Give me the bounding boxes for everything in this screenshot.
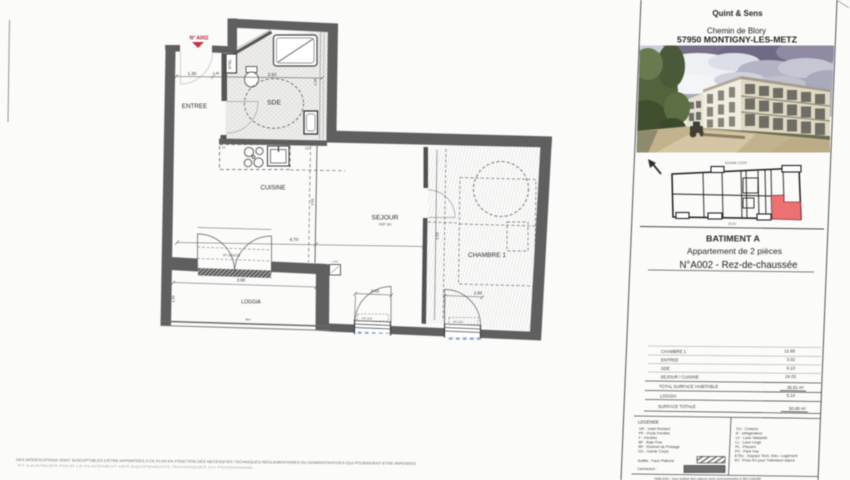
svg-text:BF : Baie Fixe: BF : Baie Fixe [638,441,662,445]
svg-text:Soffite : Faux Plafond: Soffite : Faux Plafond [638,459,674,463]
svg-text:3.61: 3.61 [311,199,315,206]
svg-text:PF 215: PF 215 [453,320,463,324]
svg-text:CU : Cuisson: CU : Cuisson [736,427,758,431]
svg-text:N°A002 - Rez-de-chaussée: N°A002 - Rez-de-chaussée [680,260,798,271]
svg-text:35.50: 35.50 [728,222,736,226]
svg-text:6.70: 6.70 [290,237,299,242]
svg-text:ETEL : Espace Tech. Elec. Loge: ETEL : Espace Tech. Elec. Logement [735,454,799,458]
svg-text:VR : Volet Roulant: VR : Volet Roulant [639,427,671,431]
svg-text:Quint & Sens: Quint & Sens [712,9,763,18]
svg-text:SEJOUR: SEJOUR [372,215,400,222]
svg-text:2.40: 2.40 [371,289,380,294]
svg-text:ETEL: ETEL [227,58,232,69]
svg-text:F : Fenêtre: F : Fenêtre [639,436,658,440]
svg-text:N° A002: N° A002 [190,36,209,42]
svg-text:1.30: 1.30 [188,71,197,76]
svg-text:ENTREE: ENTREE [182,103,208,110]
svg-text:LL : Lave Linge: LL : Lave Linge [735,441,761,445]
svg-text:12.68: 12.68 [784,349,795,354]
svg-text:BATIMENT A: BATIMENT A [706,235,760,244]
svg-text:ET AJUSTEURS POUR LE PLACEMENT: ET AJUSTEURS POUR LE PLACEMENT DES EQUIP… [18,464,253,470]
svg-text:Appartement de 2 pièces: Appartement de 2 pièces [687,246,782,256]
svg-text:50.95 m²: 50.95 m² [789,406,807,411]
svg-text:SURFACE TOTALE: SURFACE TOTALE [658,404,696,409]
svg-text:LL: LL [222,146,226,150]
svg-text:ENTREE: ENTREE [661,358,679,363]
svg-text:2.35: 2.35 [314,79,318,86]
svg-text:SDE: SDE [661,366,670,371]
svg-text:860: 860 [245,318,250,322]
svg-text:24.03: 24.03 [785,374,796,379]
svg-text:2.93: 2.93 [268,72,277,77]
svg-text:3.02: 3.02 [787,357,796,362]
svg-text:2.60: 2.60 [474,291,483,296]
svg-text:LEGENDE: LEGENDE [638,420,659,425]
svg-text:GC : Garde Corps: GC : Garde Corps [638,450,669,454]
svg-text:45.81 m²: 45.81 m² [787,385,805,390]
svg-text:1.55: 1.55 [172,296,176,303]
svg-text:PF : Porte Fenêtre: PF : Porte Fenêtre [639,432,670,436]
svg-text:LOGGIA: LOGGIA [241,300,261,306]
svg-text:1.51: 1.51 [332,260,338,264]
svg-text:RJ : Prise RJ pour Télévision: RJ : Prise RJ pour Télévision séjour [735,459,796,463]
svg-text:SDE: SDE [267,101,281,107]
svg-text:R : réfrigérateur: R : réfrigérateur [736,432,763,436]
svg-text:PL : Placard: PL : Placard [735,445,756,449]
svg-text:LOGGIA: LOGGIA [660,394,677,399]
svg-text:57950 MONTIGNY-LES-METZ: 57950 MONTIGNY-LES-METZ [677,35,797,45]
svg-text:PF 215: PF 215 [362,316,372,320]
svg-text:RP : Robinet de Puisage: RP : Robinet de Puisage [638,445,680,449]
svg-text:PF 240x215: PF 240x215 [223,254,240,258]
svg-text:1.40: 1.40 [213,72,220,76]
svg-text:SEJOUR / CUISINE: SEJOUR / CUISINE [661,375,700,380]
svg-text:PV : Pare Vue: PV : Pare Vue [735,450,759,454]
svg-text:CHAMBRE 1: CHAMBRE 1 [661,349,687,354]
svg-text:6.13: 6.13 [787,366,796,371]
svg-text:LV : Lave Vaisselle: LV : Lave Vaisselle [736,436,768,440]
svg-text:Caniveaux :: Caniveaux : [637,467,657,471]
svg-text:Echelle 1/200: Echelle 1/200 [725,161,747,165]
svg-text:HSP 3m: HSP 3m [379,223,392,227]
svg-text:4.53: 4.53 [436,232,440,239]
svg-text:5.14: 5.14 [787,393,796,398]
svg-text:3.88: 3.88 [237,278,246,283]
svg-text:CUISINE: CUISINE [261,185,286,192]
svg-text:CU: CU [305,147,310,151]
svg-text:CHAMBRE 1: CHAMBRE 1 [468,252,507,259]
svg-text:TOTAL SURFACE HABITABLE: TOTAL SURFACE HABITABLE [659,384,718,389]
